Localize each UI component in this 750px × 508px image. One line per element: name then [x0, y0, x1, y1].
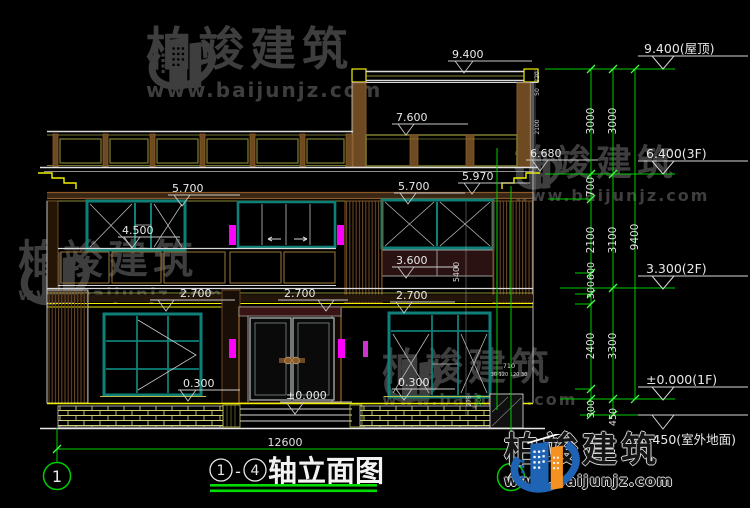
dim-text: 450 [608, 408, 619, 426]
level-mark: 7.600 [392, 111, 468, 135]
title-bubble-left: 1 [217, 463, 226, 479]
dim-text: 9400 [629, 224, 641, 251]
story-mark: 9.400(屋顶) [638, 41, 748, 69]
svg-text:9.400: 9.400 [452, 48, 484, 61]
story-marks: 9.400(屋顶) 6.400(3F) 3.300(2F) ±0.000(1F)… [636, 41, 748, 447]
title-bubble-right: 4 [251, 463, 260, 479]
dim-text: 3000 [607, 108, 619, 135]
svg-text:9.400(屋顶): 9.400(屋顶) [644, 41, 715, 56]
dim-text: 300 [586, 400, 597, 418]
svg-text:3.600: 3.600 [396, 254, 428, 267]
dim-text: 2100 [534, 119, 541, 134]
drawing-title: 1 - 4 轴立面图 [210, 454, 384, 492]
svg-text:6.400(3F): 6.400(3F) [646, 146, 707, 161]
pilaster [493, 201, 533, 303]
door-handle [279, 357, 305, 364]
wall-lamp [363, 341, 368, 357]
wall-lamp [337, 225, 344, 245]
svg-text:6.680: 6.680 [530, 147, 562, 160]
svg-text:5.970: 5.970 [462, 170, 494, 183]
dim-text: 3300 [607, 333, 619, 360]
svg-text:5.700: 5.700 [172, 182, 204, 195]
svg-text:3.300(2F): 3.300(2F) [646, 261, 707, 276]
svg-text:1: 1 [52, 467, 62, 486]
total-width-dim: 12600 [268, 436, 303, 449]
svg-text:±0.000(1F): ±0.000(1F) [646, 372, 717, 387]
story-mark: -0.450(室外地面) [636, 415, 748, 447]
entrance-steps [240, 409, 352, 421]
dim-text: 600 [586, 262, 597, 280]
svg-text:±0.000: ±0.000 [286, 389, 327, 402]
svg-text:2.700: 2.700 [396, 289, 428, 302]
dim-text: 50 [534, 88, 541, 96]
title-separator: - [235, 462, 241, 481]
roof-railing [47, 132, 353, 168]
svg-text:4: 4 [506, 468, 516, 487]
dim-text: 2400 [585, 333, 597, 360]
dim-text: 710 [503, 362, 515, 370]
svg-text:5.700: 5.700 [398, 180, 430, 193]
dim-text: 220 [534, 71, 541, 83]
story-mark: 3.300(2F) [638, 261, 748, 289]
building-elevation: 5400 220 50 2100 710 30 120 120 30 275 3… [38, 69, 545, 429]
slat-screen [47, 290, 88, 403]
dim-text: 2100 [585, 227, 597, 254]
stair-room [352, 83, 538, 168]
svg-text:7.600: 7.600 [396, 111, 428, 124]
pilaster [345, 201, 382, 303]
svg-text:0.300: 0.300 [183, 377, 215, 390]
sliding-door-2f [238, 202, 335, 247]
level-mark: 5.970 [458, 170, 530, 194]
title-text: 轴立面图 [268, 454, 384, 488]
story-mark: 6.400(3F) [638, 146, 748, 174]
dim-text: 3100 [607, 227, 619, 254]
story-mark: ±0.000(1F) [638, 372, 748, 400]
dim-text: 30 120 120 30 [491, 372, 528, 378]
dim-text: 300 [476, 394, 483, 406]
elevation-linework: 5400 220 50 2100 710 30 120 120 30 275 3… [0, 0, 750, 508]
dim-text: 700 [585, 177, 597, 197]
dim-text: 3000 [585, 108, 597, 135]
cad-elevation-drawing: 柏竣建筑 www.baijunjz.com 柏竣建筑 www.baijunjz.… [0, 0, 750, 508]
level-mark: 9.400 [448, 48, 532, 73]
svg-text:0.300: 0.300 [398, 376, 430, 389]
svg-text:2.700: 2.700 [284, 287, 316, 300]
balcony-parapet [58, 249, 336, 286]
dim-text: 5400 [452, 262, 461, 282]
axis-bubble-1: 1 [44, 463, 71, 490]
svg-text:4.500: 4.500 [122, 224, 154, 237]
svg-text:-0.450(室外地面): -0.450(室外地面) [636, 432, 736, 447]
svg-text:2.700: 2.700 [180, 287, 212, 300]
wall-lamp [229, 339, 236, 358]
wall-lamp [229, 225, 236, 245]
level-mark: 4.500 [118, 224, 180, 248]
dim-text: 275 [466, 395, 473, 407]
dim-text: 300 [586, 281, 597, 299]
parapet-coping [352, 69, 538, 82]
axis-bubble-4: 4 [498, 464, 525, 491]
wall-lamp [338, 339, 345, 358]
